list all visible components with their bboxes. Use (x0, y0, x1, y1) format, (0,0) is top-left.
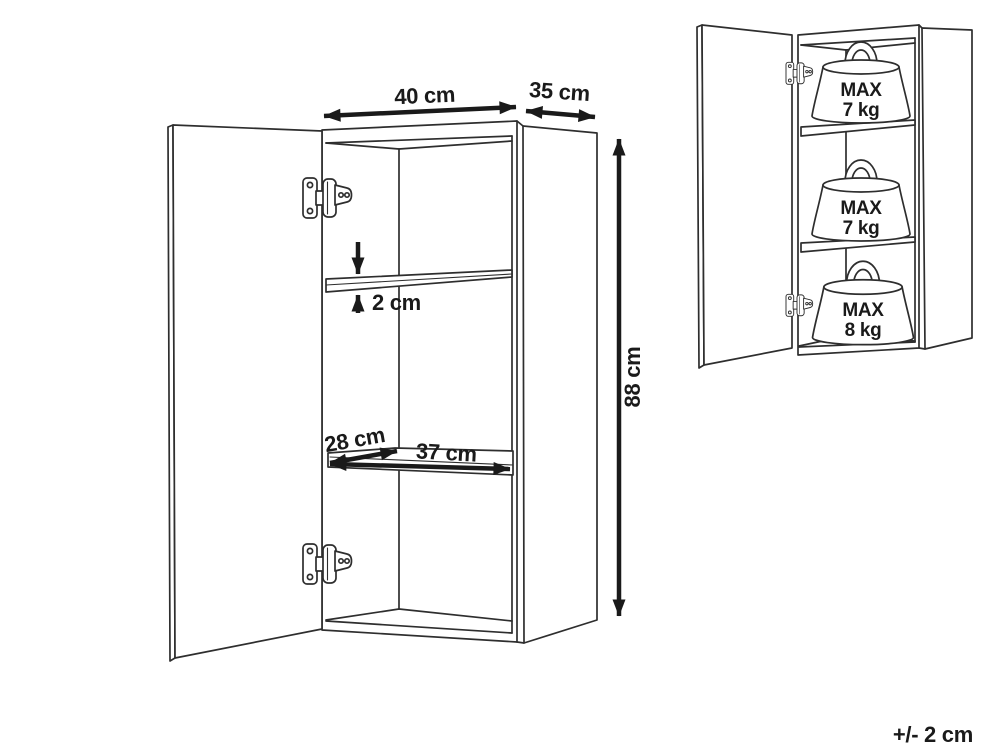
tolerance-note: +/- 2 cm (893, 722, 973, 747)
weight-labels: MAX 7 kg MAX 7 kg MAX 8 kg (840, 80, 884, 341)
hinge-icon (303, 178, 352, 218)
cabinet-technical-drawing: 40 cm 35 cm 88 cm 2 cm 28 cm 37 cm (0, 0, 1000, 750)
hinge-icon (303, 544, 352, 584)
dimension-view: 40 cm 35 cm 88 cm 2 cm 28 cm 37 cm (168, 77, 645, 661)
height-label: 88 cm (620, 347, 645, 408)
weight-value-label: 7 kg (843, 218, 880, 239)
load-view: MAX 7 kg MAX 7 kg MAX 8 kg (697, 25, 972, 368)
cabinet-interior (326, 136, 512, 633)
weight-max-label: MAX (840, 198, 882, 219)
cabinet-body (322, 121, 597, 643)
weight-max-label: MAX (840, 80, 882, 101)
interior-width-label: 37 cm (415, 438, 477, 466)
cabinet-door (168, 125, 322, 661)
door-panel (702, 25, 792, 365)
hinge-icon (786, 62, 813, 84)
door-panel (173, 125, 322, 658)
hinge-icon (786, 294, 813, 316)
upper-shelf (326, 270, 512, 292)
shelf-thickness-label: 2 cm (372, 290, 421, 315)
depth-label: 35 cm (528, 77, 590, 106)
load-cabinet-side-panel (922, 28, 972, 349)
weight-value-label: 8 kg (845, 320, 882, 341)
depth-arrow (526, 111, 595, 117)
weight-value-label: 7 kg (843, 100, 880, 121)
width-arrow (324, 107, 516, 116)
weight-max-label: MAX (842, 300, 884, 321)
width-label: 40 cm (394, 82, 456, 110)
diagram-canvas: 40 cm 35 cm 88 cm 2 cm 28 cm 37 cm (0, 0, 1000, 750)
load-cabinet-door (697, 25, 792, 368)
cabinet-side-panel (523, 126, 597, 643)
